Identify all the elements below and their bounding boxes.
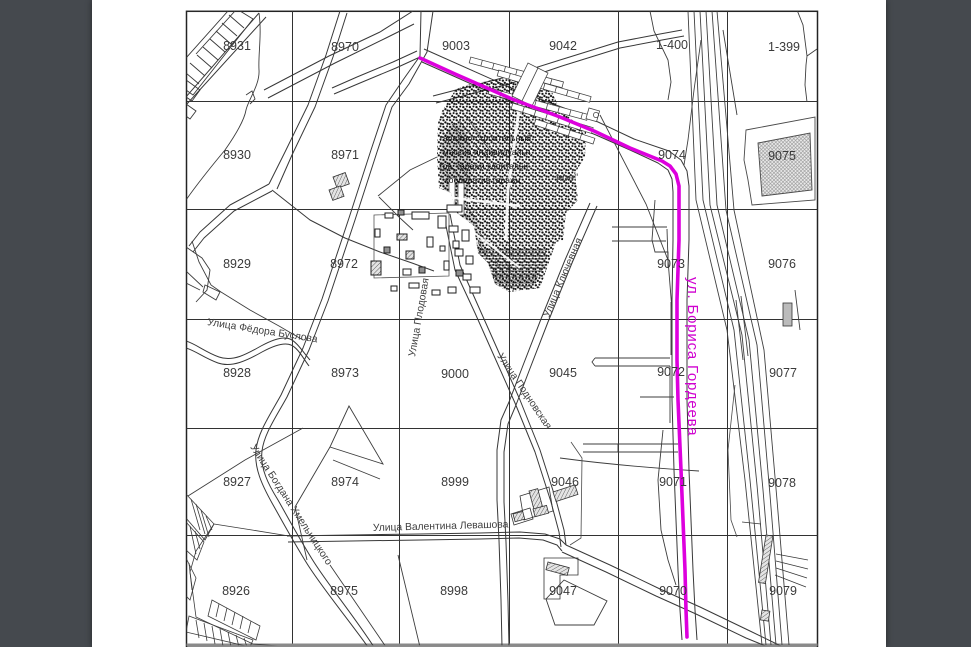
svg-text:9075: 9075	[768, 149, 796, 163]
svg-text:9072: 9072	[657, 365, 685, 379]
svg-text:9003: 9003	[442, 39, 470, 53]
svg-text:8973: 8973	[331, 366, 359, 380]
svg-text:8927: 8927	[223, 475, 251, 489]
svg-text:Улица Плодовая: Улица Плодовая	[407, 277, 432, 357]
svg-text:9045: 9045	[549, 366, 577, 380]
svg-text:9079: 9079	[769, 584, 797, 598]
svg-text:8931: 8931	[223, 39, 251, 53]
svg-text:тов. гаражи капитальн: тов. гаражи капитальн	[439, 162, 528, 171]
svg-text:1-400: 1-400	[656, 38, 688, 52]
svg-text:кооператив гаражн: кооператив гаражн	[445, 176, 521, 185]
svg-text:1-399: 1-399	[768, 40, 800, 54]
svg-text:8929: 8929	[223, 257, 251, 271]
svg-text:9071: 9071	[659, 475, 687, 489]
svg-text:9047: 9047	[549, 584, 577, 598]
svg-text:9077: 9077	[769, 366, 797, 380]
svg-text:Улица Фёдора Буслова: Улица Фёдора Буслова	[207, 317, 319, 345]
svg-text:ное": ное"	[556, 172, 578, 184]
svg-text:8970: 8970	[331, 40, 359, 54]
svg-text:9070: 9070	[659, 584, 687, 598]
svg-text:8971: 8971	[331, 148, 359, 162]
svg-text:9046: 9046	[551, 475, 579, 489]
svg-text:8930: 8930	[223, 148, 251, 162]
svg-text:Улица Валентина Левашова: Улица Валентина Левашова	[373, 519, 509, 534]
svg-text:8972: 8972	[330, 257, 358, 271]
svg-text:8998: 8998	[440, 584, 468, 598]
svg-text:9000: 9000	[441, 367, 469, 381]
svg-text:9042: 9042	[549, 39, 577, 53]
svg-text:8975: 8975	[330, 584, 358, 598]
svg-text:8974: 8974	[331, 475, 359, 489]
svg-text:массив индивидуальн.: массив индивидуальн.	[443, 148, 533, 157]
svg-text:гаражно-строительный: гаражно-строительный	[440, 134, 531, 143]
svg-text:ул. Бориса Гордеева: ул. Бориса Гордеева	[684, 277, 701, 436]
svg-text:Улица Богдана Хмельницкого: Улица Богдана Хмельницкого	[247, 443, 333, 568]
svg-text:8999: 8999	[441, 475, 469, 489]
svg-text:9073: 9073	[657, 257, 685, 271]
svg-text:8926: 8926	[222, 584, 250, 598]
svg-text:9078: 9078	[768, 476, 796, 490]
svg-text:9074: 9074	[658, 148, 686, 162]
svg-text:8928: 8928	[223, 366, 251, 380]
svg-text:9076: 9076	[768, 257, 796, 271]
